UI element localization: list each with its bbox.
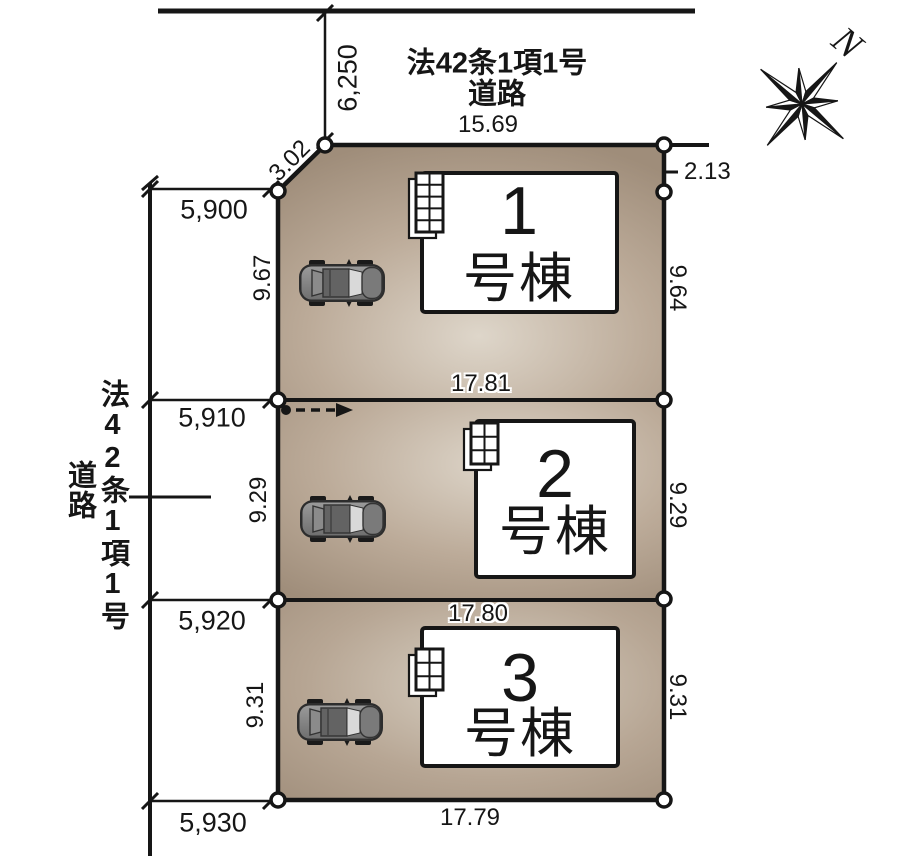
building-2-number: 2 — [536, 440, 574, 508]
top-road-name-line1: 法42条1項1号 — [407, 50, 588, 79]
dim-lot3-depth-right: 9.31 — [665, 674, 689, 721]
dim-frontage-lot3: 5,920 — [178, 608, 246, 635]
dim-top-road-width: 6,250 — [335, 44, 362, 112]
dim-lot2-depth-left: 9.29 — [247, 477, 271, 524]
top-road-name-line2: 道路 — [468, 81, 526, 110]
dim-lot1-depth-left: 9.67 — [251, 255, 275, 302]
dim-lot3-depth-left: 9.31 — [244, 682, 268, 729]
dim-right-setback: 2.13 — [684, 160, 731, 184]
dim-frontage-bottom: 5,930 — [179, 810, 247, 837]
left-road-name-line1: 法42条1項1号 — [98, 379, 127, 631]
dim-lot1-boundary-width: 17.81 — [451, 372, 511, 396]
building-3-balcony-grid — [409, 649, 443, 696]
dim-top-frontage: 15.69 — [458, 113, 518, 137]
car-icon-2 — [300, 495, 386, 543]
building-1-suffix: 号棟 — [463, 252, 575, 306]
building-1-balcony-grid — [409, 173, 443, 238]
dim-lot2-depth-right: 9.29 — [665, 482, 689, 529]
dim-lot1-depth-right: 9.64 — [665, 265, 689, 312]
building-2-suffix: 号棟 — [499, 505, 611, 559]
building-3-suffix: 号棟 — [464, 707, 576, 761]
car-icon-1 — [299, 259, 385, 307]
building-3-number: 3 — [501, 644, 539, 712]
car-icon-3 — [297, 698, 383, 746]
dim-lot2-boundary-width: 17.80 — [448, 602, 508, 626]
building-1-number: 1 — [500, 177, 538, 245]
dim-frontage-lot1: 5,900 — [180, 197, 248, 224]
building-2-balcony-grid — [464, 423, 498, 470]
dim-frontage-lot2: 5,910 — [178, 405, 246, 432]
left-road-name-line2: 道路 — [65, 460, 94, 520]
site-plan: 法42条1項1号 道路 15.69 6,250 3.02 2.13 5,900 … — [0, 0, 914, 864]
dim-site-bottom-width: 17.79 — [440, 806, 500, 830]
